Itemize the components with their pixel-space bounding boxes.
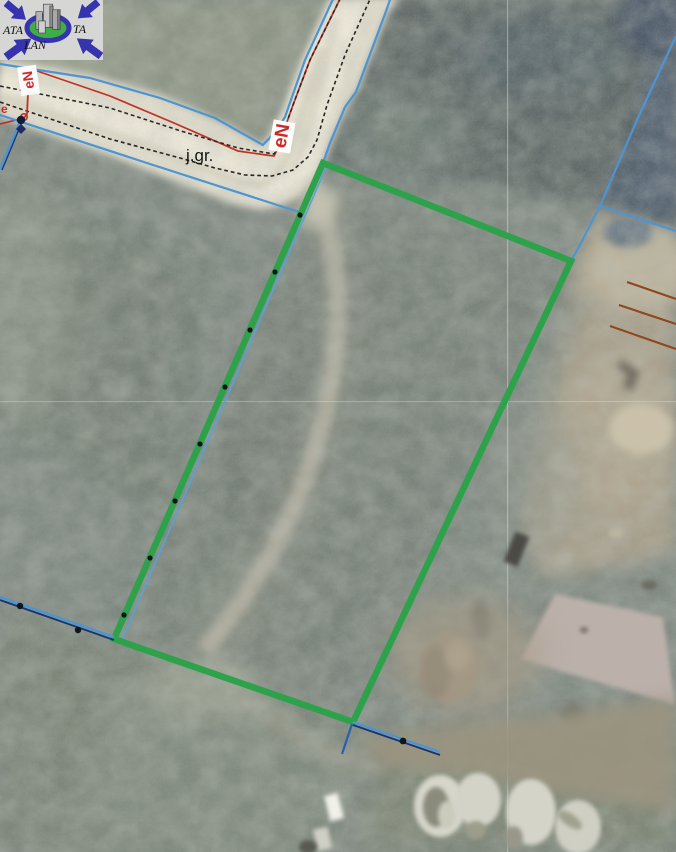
svg-text:TA: TA [73, 22, 87, 36]
svg-text:eN: eN [270, 122, 295, 150]
svg-text:eN: eN [19, 70, 37, 90]
svg-text:ATA: ATA [2, 23, 24, 37]
svg-text:LAN: LAN [23, 38, 47, 52]
svg-text:j.gr.: j.gr. [185, 146, 213, 165]
svg-text:e: e [1, 102, 8, 116]
